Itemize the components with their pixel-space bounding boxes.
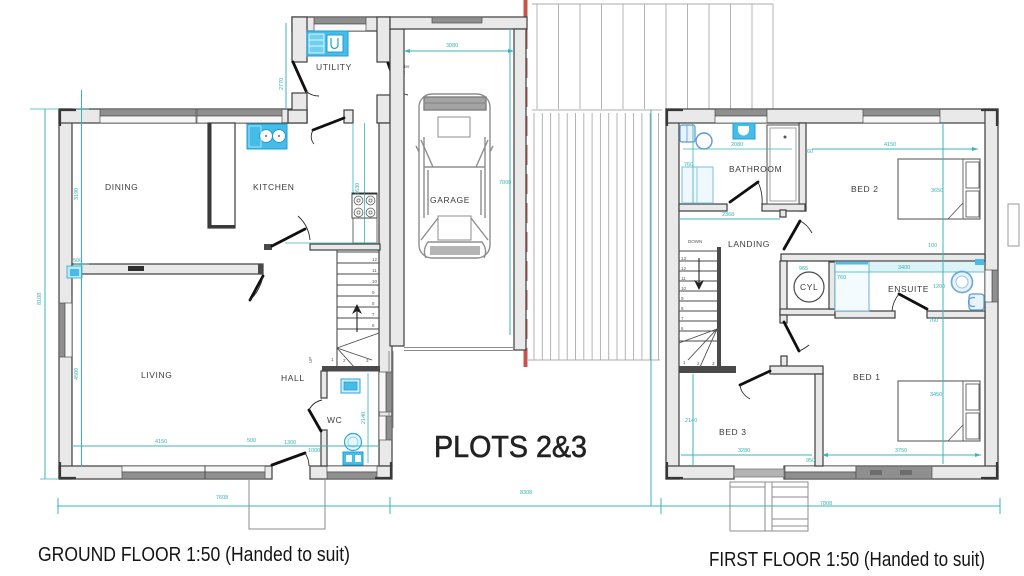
svg-text:11: 11 (372, 268, 377, 273)
svg-text:1000: 1000 (308, 448, 320, 454)
svg-text:7000: 7000 (499, 180, 511, 186)
svg-text:GARAGE: GARAGE (430, 195, 470, 205)
svg-text:3080: 3080 (446, 43, 458, 49)
svg-text:2630: 2630 (355, 183, 361, 195)
svg-text:PLOTS 2&3: PLOTS 2&3 (434, 429, 587, 464)
svg-text:2770: 2770 (279, 78, 285, 90)
svg-text:BATHROOM: BATHROOM (729, 164, 782, 174)
svg-text:KITCHEN: KITCHEN (253, 182, 295, 192)
svg-text:11: 11 (681, 276, 686, 281)
svg-text:2368: 2368 (722, 212, 734, 218)
svg-text:3450: 3450 (930, 392, 942, 398)
svg-text:LIVING: LIVING (141, 370, 172, 380)
svg-text:12: 12 (372, 257, 378, 262)
svg-text:1200: 1200 (933, 284, 945, 290)
svg-text:8308: 8308 (520, 490, 532, 496)
svg-text:7608: 7608 (216, 495, 228, 501)
svg-text:10: 10 (372, 279, 378, 284)
svg-text:500: 500 (247, 438, 256, 444)
svg-text:UTILITY: UTILITY (316, 62, 352, 72)
svg-text:GROUND FLOOR 1:50 (Handed to: GROUND FLOOR 1:50 (Handed to suit) (38, 544, 350, 566)
svg-text:760: 760 (837, 275, 846, 281)
svg-text:HALL: HALL (281, 373, 305, 383)
svg-text:WC: WC (327, 415, 342, 425)
svg-text:BED 3: BED 3 (719, 427, 747, 437)
svg-text:60: 60 (807, 149, 813, 155)
svg-text:BED 2: BED 2 (851, 184, 879, 194)
svg-text:ENSUITE: ENSUITE (888, 284, 929, 294)
svg-text:500: 500 (73, 258, 82, 264)
svg-text:FIRST FLOOR 1:50 (Handed to s: FIRST FLOOR 1:50 (Handed to suit) (709, 549, 985, 571)
svg-text:965: 965 (799, 266, 808, 272)
svg-text:UP: UP (308, 357, 313, 363)
svg-text:950: 950 (806, 458, 815, 464)
svg-text:3280: 3280 (738, 448, 750, 454)
svg-text:10: 10 (681, 286, 687, 291)
svg-text:3400: 3400 (898, 265, 910, 271)
svg-text:4150: 4150 (884, 142, 896, 148)
svg-text:100: 100 (928, 243, 937, 249)
svg-text:BED 1: BED 1 (853, 372, 881, 382)
svg-text:8108: 8108 (37, 293, 43, 305)
svg-text:DINING: DINING (105, 182, 138, 192)
svg-text:7808: 7808 (820, 501, 832, 507)
svg-text:4500: 4500 (74, 368, 80, 380)
svg-text:CYL: CYL (800, 282, 818, 292)
svg-text:2140: 2140 (685, 418, 697, 424)
svg-text:760: 760 (929, 318, 938, 324)
svg-text:2140: 2140 (361, 412, 367, 424)
svg-text:3750: 3750 (895, 448, 907, 454)
svg-text:LANDING: LANDING (728, 239, 770, 249)
svg-text:3190: 3190 (74, 188, 80, 200)
svg-text:3650: 3650 (931, 188, 943, 194)
svg-text:4150: 4150 (155, 439, 167, 445)
svg-text:1300: 1300 (284, 440, 296, 446)
svg-text:13: 13 (681, 256, 687, 261)
svg-text:12: 12 (681, 266, 687, 271)
svg-text:DOWN: DOWN (688, 239, 702, 244)
svg-text:760: 760 (684, 162, 693, 168)
svg-text:2080: 2080 (731, 142, 743, 148)
